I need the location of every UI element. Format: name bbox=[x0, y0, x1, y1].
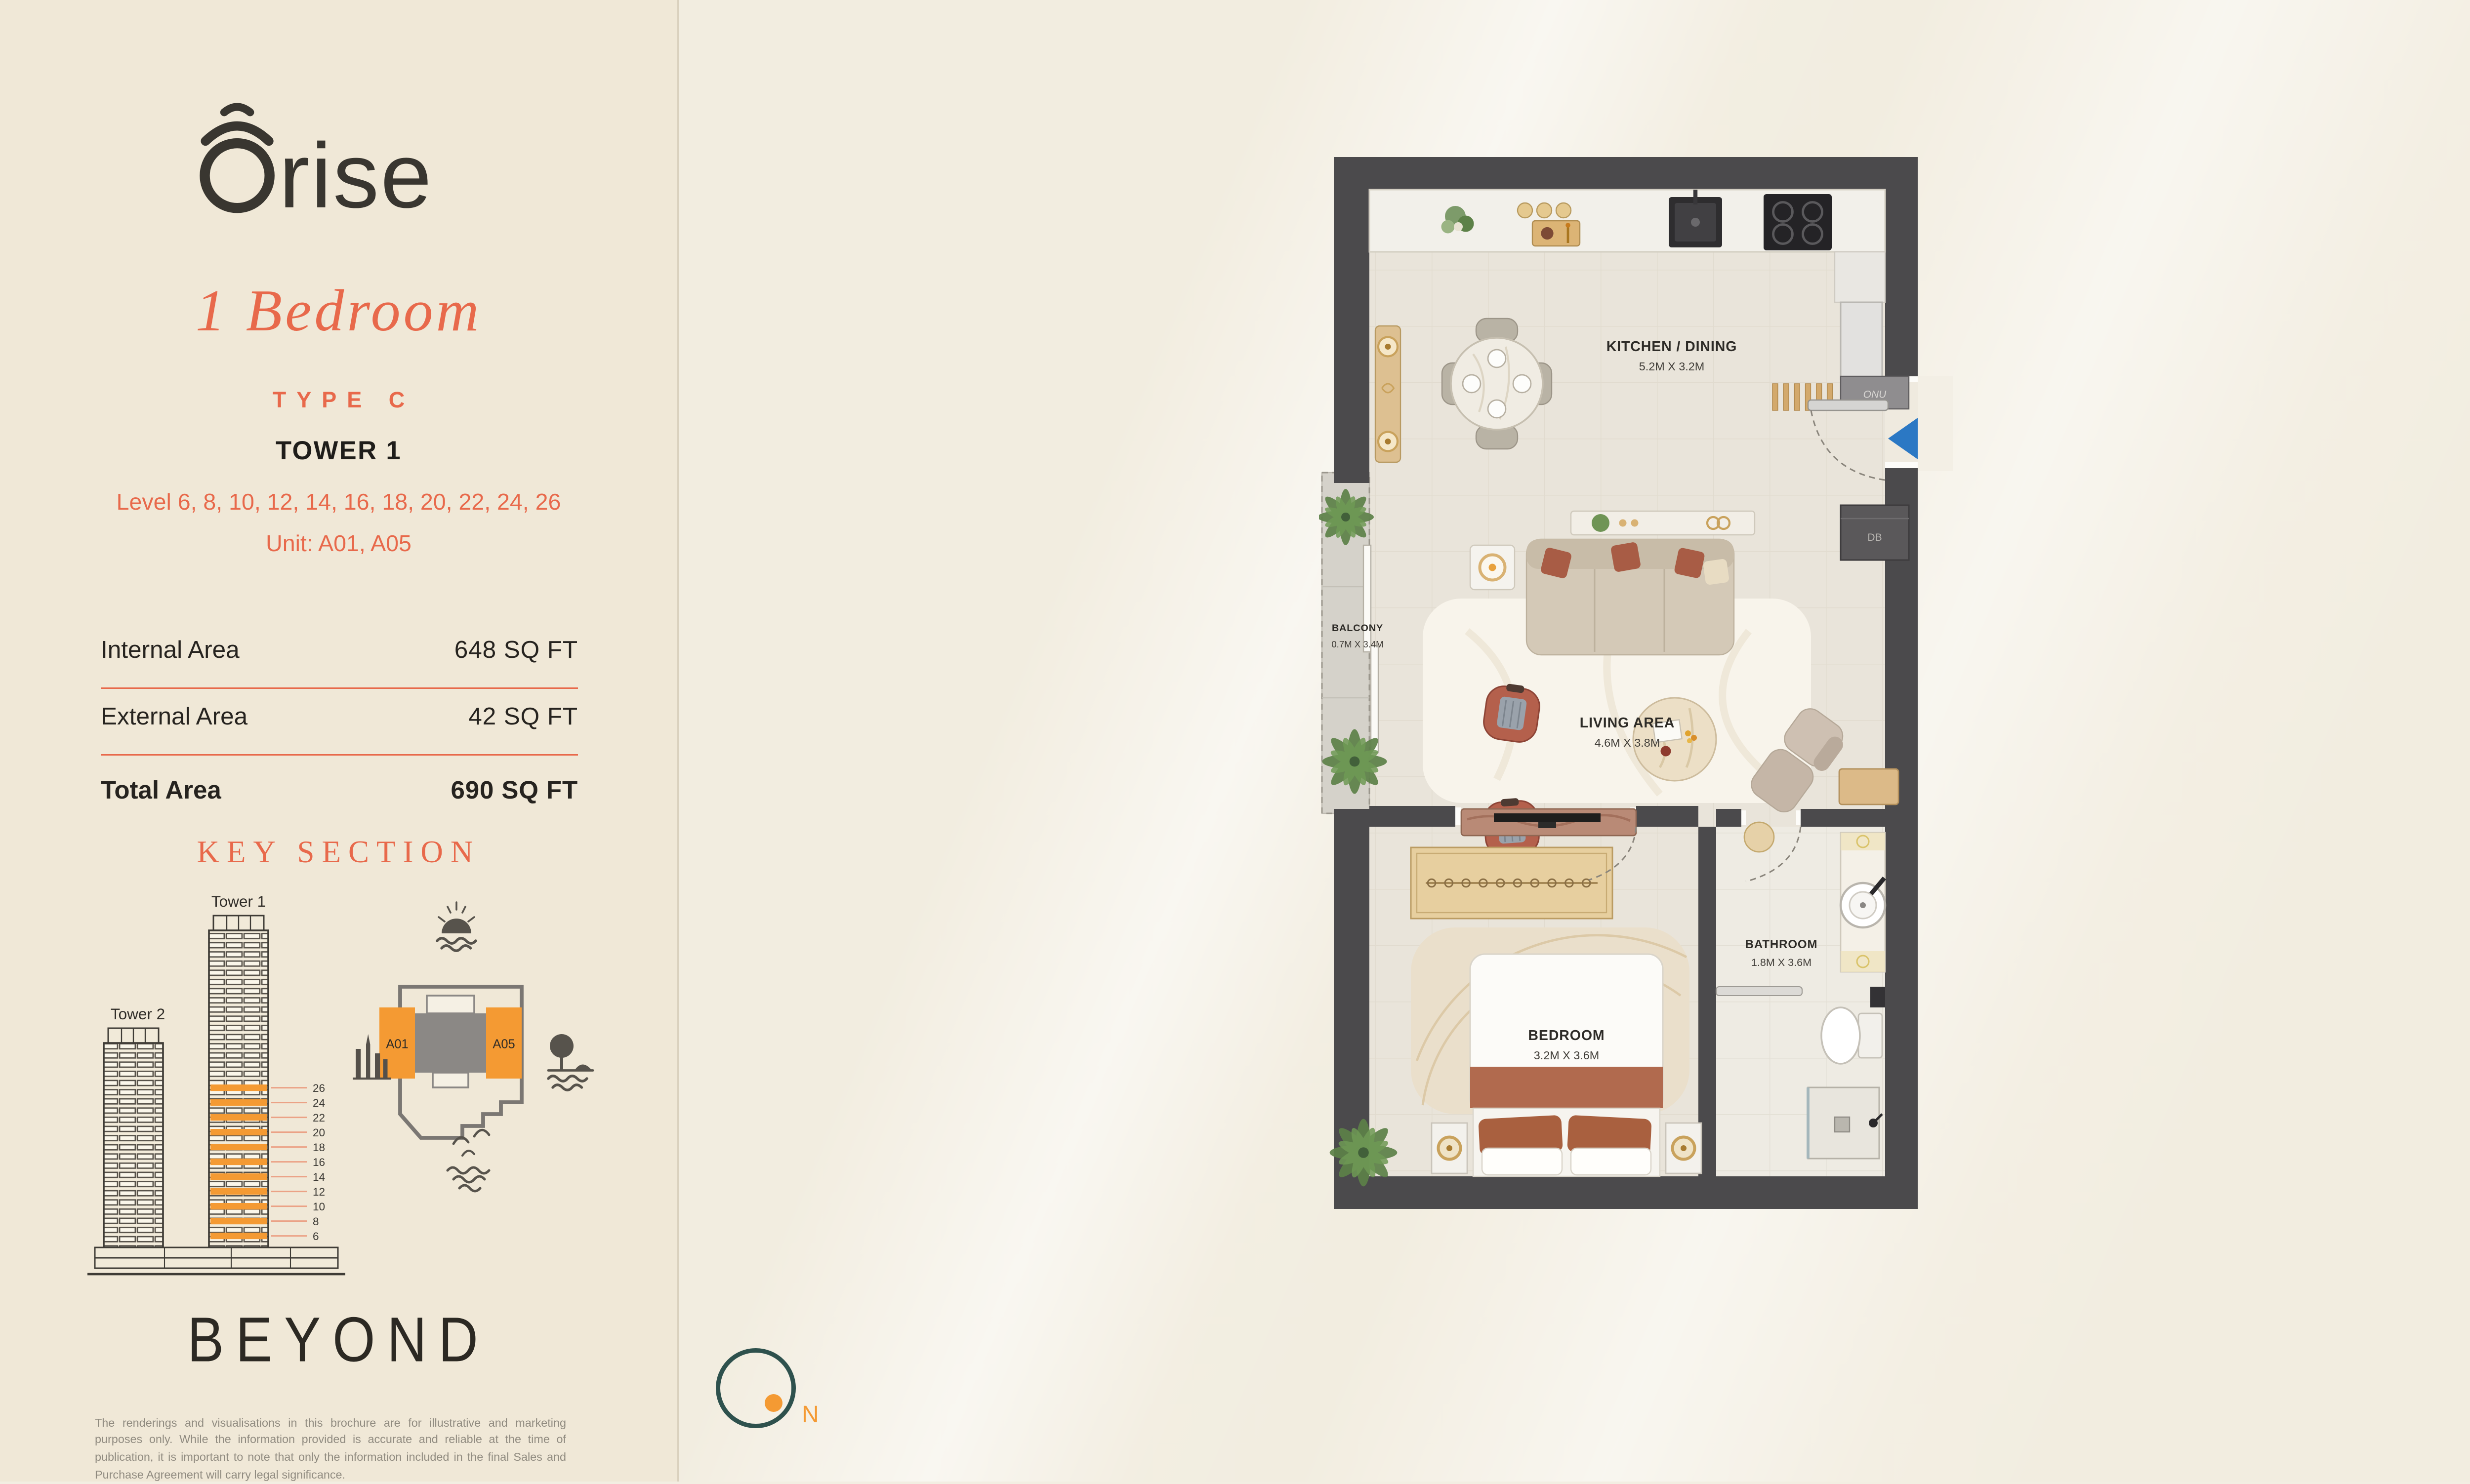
level-leader-lines bbox=[271, 1088, 307, 1236]
tower1-elevation bbox=[209, 916, 268, 1247]
console-table bbox=[1375, 326, 1400, 462]
svg-text:20: 20 bbox=[313, 1126, 325, 1139]
area-label: External Area bbox=[101, 704, 247, 732]
level-numbers: 2624 2220 1816 1412 108 6 bbox=[313, 1082, 325, 1243]
side-table bbox=[1470, 545, 1515, 590]
svg-text:24: 24 bbox=[313, 1097, 325, 1109]
room-dims-living: 4.6M X 3.8M bbox=[1595, 736, 1660, 749]
svg-text:12: 12 bbox=[313, 1186, 325, 1198]
db-cabinet: DB bbox=[1841, 505, 1909, 560]
room-dims-kitchen: 5.2M X 3.2M bbox=[1639, 360, 1705, 373]
svg-text:22: 22 bbox=[313, 1112, 325, 1124]
area-value: 690 SQ FT bbox=[451, 776, 578, 806]
pocket-door bbox=[1716, 987, 1802, 996]
sideboard bbox=[1571, 511, 1755, 535]
room-label-kitchen: KITCHEN / DINING bbox=[1606, 339, 1737, 355]
svg-text:10: 10 bbox=[313, 1201, 325, 1213]
round-side-table bbox=[1744, 822, 1774, 852]
shower bbox=[1808, 1087, 1882, 1159]
north-indicator: N bbox=[716, 1348, 864, 1459]
unit-a05-label: A05 bbox=[493, 1038, 515, 1051]
area-value: 42 SQ FT bbox=[468, 704, 578, 732]
info-panel: rise 1 Bedroom TYPE C TOWER 1 Level 6, 8… bbox=[0, 0, 679, 1482]
orise-logo-text: rise bbox=[278, 124, 432, 219]
brochure-page: rise 1 Bedroom TYPE C TOWER 1 Level 6, 8… bbox=[0, 0, 2470, 1482]
developer-logo: BEYOND bbox=[0, 1305, 677, 1377]
room-label-living: LIVING AREA bbox=[1580, 715, 1675, 731]
orise-logo-icon: rise bbox=[188, 86, 490, 219]
tower-name: TOWER 1 bbox=[0, 436, 677, 467]
area-value: 648 SQ FT bbox=[454, 637, 578, 665]
sofa bbox=[1526, 539, 1734, 655]
key-section-title: KEY SECTION bbox=[0, 834, 677, 871]
tower1-label: Tower 1 bbox=[211, 892, 266, 910]
disclaimer-text: The renderings and visualisations in thi… bbox=[95, 1414, 566, 1484]
unit-type: TYPE C bbox=[0, 388, 677, 413]
nightstand bbox=[1666, 1123, 1701, 1173]
nightstand bbox=[1432, 1123, 1467, 1173]
units-line: Unit: A01, A05 bbox=[0, 532, 677, 559]
hob-icon bbox=[1764, 194, 1832, 250]
waves-icon bbox=[448, 1167, 489, 1191]
vanity-sink bbox=[1841, 833, 1886, 972]
room-label-balcony: BALCONY bbox=[1332, 623, 1383, 634]
wood-bench bbox=[1839, 769, 1898, 804]
levels-line: Level 6, 8, 10, 12, 14, 16, 18, 20, 22, … bbox=[0, 490, 677, 517]
unit-title: 1 Bedroom bbox=[0, 276, 677, 345]
north-label: N bbox=[802, 1403, 819, 1430]
svg-text:14: 14 bbox=[313, 1171, 325, 1183]
floor-plan: ONU bbox=[1319, 157, 1959, 1234]
sunset-icon bbox=[437, 902, 476, 951]
svg-text:26: 26 bbox=[313, 1082, 325, 1094]
palm-tree bbox=[1319, 489, 1374, 545]
unit-a01-label: A01 bbox=[386, 1038, 408, 1051]
palm-tree bbox=[1322, 729, 1387, 794]
svg-text:18: 18 bbox=[313, 1141, 325, 1154]
table-row-external-area: External Area 42 SQ FT bbox=[101, 689, 578, 754]
tower2-label: Tower 2 bbox=[111, 1005, 165, 1023]
table-row-total-area: Total Area 690 SQ FT bbox=[101, 756, 578, 828]
tv-icon bbox=[1494, 813, 1601, 822]
compass-dot-icon bbox=[765, 1394, 782, 1412]
room-label-bathroom: BATHROOM bbox=[1745, 938, 1818, 951]
bed bbox=[1470, 954, 1663, 1176]
podium bbox=[87, 1247, 345, 1274]
onu-label: ONU bbox=[1863, 389, 1887, 401]
key-plan: A01 A05 bbox=[379, 987, 522, 1138]
svg-text:16: 16 bbox=[313, 1156, 325, 1168]
area-table: Internal Area 648 SQ FT External Area 42… bbox=[101, 622, 578, 828]
svg-text:8: 8 bbox=[313, 1215, 319, 1228]
tower2-elevation bbox=[104, 1028, 163, 1247]
area-label: Internal Area bbox=[101, 637, 240, 665]
area-label: Total Area bbox=[101, 776, 221, 806]
sliding-door bbox=[1363, 545, 1371, 652]
room-label-bedroom: BEDROOM bbox=[1528, 1028, 1605, 1043]
entry-door-leaf bbox=[1808, 400, 1888, 410]
key-section-diagram: Tower 1 Tower 2 bbox=[83, 886, 594, 1296]
kitchen-sink bbox=[1669, 190, 1722, 247]
seaside-park-icon bbox=[548, 1034, 593, 1090]
compass-circle-icon bbox=[716, 1348, 796, 1428]
svg-text:6: 6 bbox=[313, 1230, 319, 1243]
tv-console bbox=[1461, 809, 1636, 836]
wardrobe bbox=[1411, 847, 1612, 919]
room-dims-balcony: 0.7M X 3.4M bbox=[1331, 639, 1383, 649]
room-dims-bathroom: 1.8M X 3.6M bbox=[1751, 956, 1811, 968]
fridge bbox=[1841, 302, 1882, 379]
db-label: DB bbox=[1867, 532, 1882, 543]
room-dims-bedroom: 3.2M X 3.6M bbox=[1534, 1049, 1600, 1062]
plates bbox=[1518, 203, 1571, 218]
cutting-board bbox=[1532, 221, 1580, 246]
palm-tree bbox=[1330, 1119, 1398, 1187]
table-row-internal-area: Internal Area 648 SQ FT bbox=[101, 622, 578, 687]
orise-logo: rise bbox=[0, 86, 677, 219]
seagulls-icon bbox=[453, 1130, 489, 1156]
